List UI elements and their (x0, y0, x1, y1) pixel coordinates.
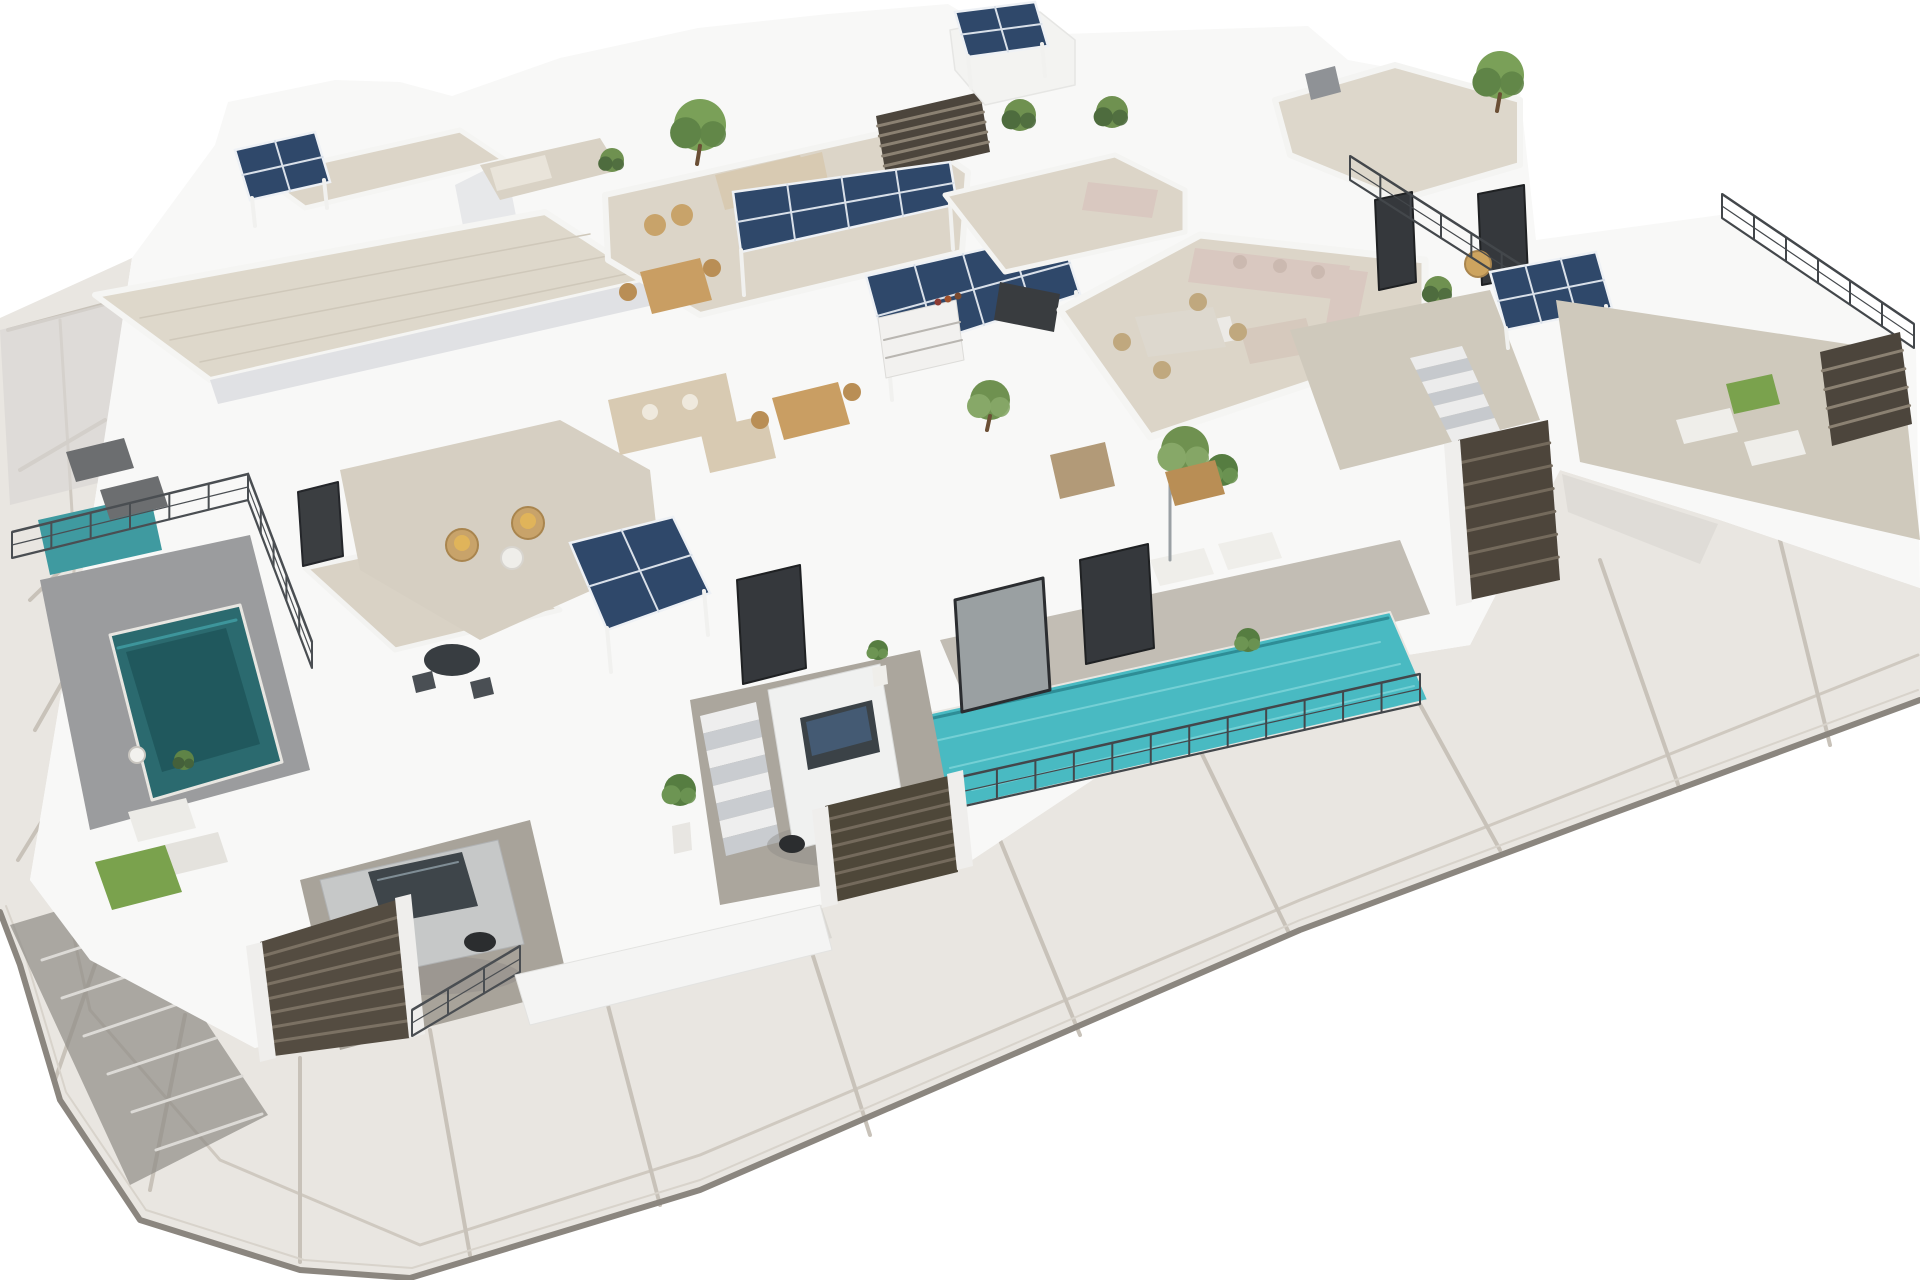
render-canvas (0, 0, 1920, 1280)
plant-small-foliage (867, 647, 879, 659)
door-center-villa (737, 565, 806, 684)
door-center-interior (955, 578, 1050, 712)
plant-terrace-big-foliage (1222, 468, 1238, 484)
wicker-cushion-yellow (454, 535, 470, 551)
plant-deck-foliage (173, 757, 185, 769)
plant-poolside-foliage (1234, 636, 1248, 650)
side-table-round (501, 547, 523, 569)
plant-pot-white (672, 822, 692, 854)
car-wheel (779, 835, 805, 853)
plant-small-foliage (878, 649, 888, 659)
plant-terrace-big-foliage (1157, 443, 1186, 472)
door-center-villa (1080, 544, 1154, 664)
dining-chair (619, 283, 637, 301)
architectural-render-image (0, 0, 1920, 1280)
tree-top-foliage (1002, 110, 1021, 129)
armchair-tan (644, 214, 666, 236)
dining-chair (843, 383, 861, 401)
plant-deck-foliage (184, 759, 194, 769)
tree-mid-foliage (990, 397, 1010, 417)
plant-parapet-foliage (1094, 107, 1113, 126)
dining-chair (1113, 333, 1131, 351)
tree-large-foliage (670, 117, 701, 148)
tree-small-foliage (612, 158, 624, 170)
plant-parapet-foliage (1422, 286, 1439, 303)
plant-poolside-foliage (1248, 638, 1260, 650)
table-oval-dark (424, 644, 480, 676)
tree-mid-foliage (967, 394, 991, 418)
car-wheel (464, 932, 496, 952)
window-left-villa-small (298, 482, 343, 566)
sofa-cushion (1233, 255, 1247, 269)
plant-fiddle-foliage (662, 785, 681, 804)
solar-panel-tilted-right-post (1506, 328, 1508, 348)
tree-top-right-foliage (1500, 71, 1524, 95)
plant-parapet-foliage (1112, 110, 1128, 126)
tree-top-right-foliage (1472, 68, 1501, 97)
dining-chair (703, 259, 721, 277)
sofa-cushion (642, 404, 658, 420)
dining-chair (751, 411, 769, 429)
plant-fiddle-foliage (680, 788, 696, 804)
bottle (945, 296, 952, 303)
sofa-cushion (1311, 265, 1325, 279)
armchair-tan (671, 204, 693, 226)
pool-lamp (129, 747, 145, 763)
dining-chair (1229, 323, 1247, 341)
sofa-cushion (1273, 259, 1287, 273)
tree-large-foliage (700, 121, 726, 147)
gate-right (1458, 420, 1560, 600)
sofa-cushion (682, 394, 698, 410)
dining-chair (1153, 361, 1171, 379)
tree-small-foliage (598, 156, 612, 170)
dining-chair (1189, 293, 1207, 311)
tree-top-foliage (1020, 113, 1036, 129)
bottle (935, 299, 942, 306)
bottle (955, 293, 962, 300)
wicker-cushion-yellow (520, 513, 536, 529)
plant-pot-white (872, 665, 888, 687)
